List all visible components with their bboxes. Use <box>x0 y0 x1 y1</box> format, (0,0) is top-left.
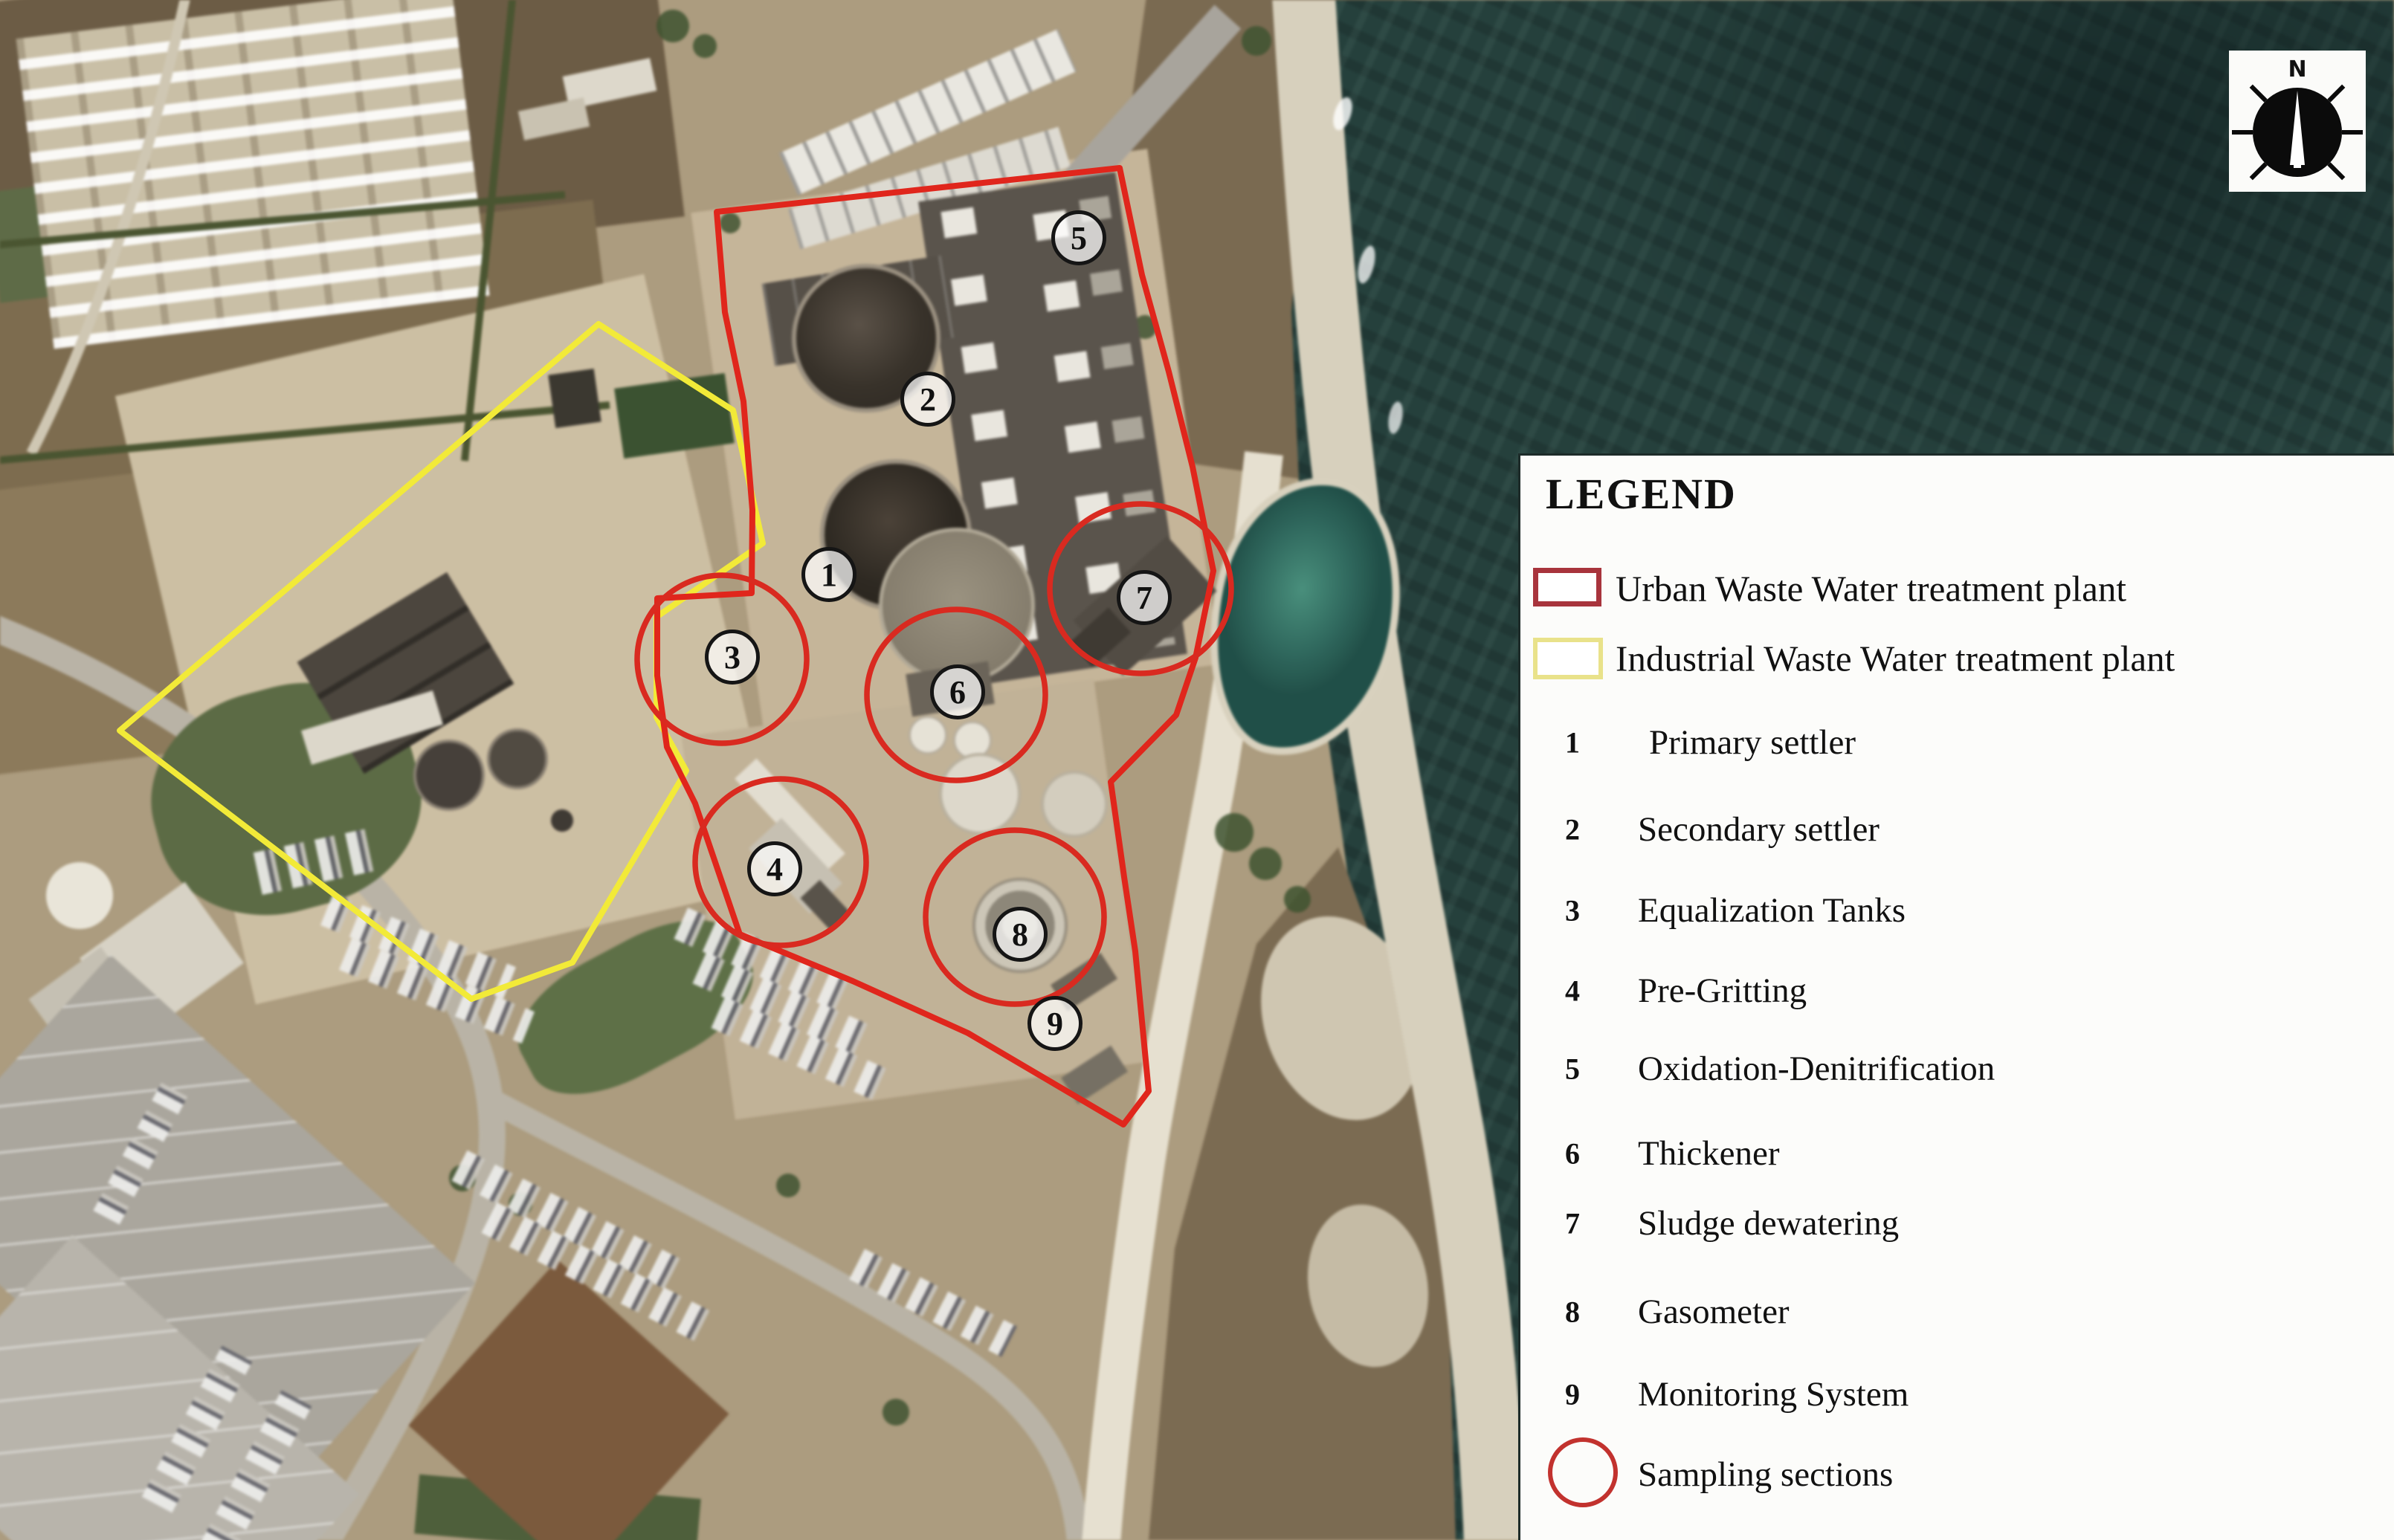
legend-row-8: 8 Gasometer <box>1520 1290 2394 1334</box>
north-label: N <box>2229 56 2366 82</box>
industrial-boundary <box>120 324 763 999</box>
compass-rose: N <box>2229 51 2366 192</box>
legend-row-4: 4 Pre-Gritting <box>1520 968 2394 1013</box>
legend-row-sampling: Sampling sections <box>1520 1451 2394 1525</box>
legend-number: 6 <box>1556 1136 1589 1171</box>
map-marker-1: 1 <box>801 547 856 602</box>
legend-number: 1 <box>1556 725 1589 760</box>
legend-label: Thickener <box>1638 1133 1780 1174</box>
legend-row-2: 2 Secondary settler <box>1520 807 2394 852</box>
legend-number: 2 <box>1556 812 1589 847</box>
legend-label: Sludge dewatering <box>1638 1203 1899 1243</box>
legend-label: Oxidation-Denitrification <box>1638 1049 1995 1089</box>
legend-label: Monitoring System <box>1638 1374 1909 1414</box>
legend-row-3: 3 Equalization Tanks <box>1520 888 2394 933</box>
map-marker-6: 6 <box>930 664 985 719</box>
legend-number: 4 <box>1556 974 1589 1009</box>
legend-row-industrial: Industrial Waste Water treatment plant <box>1520 636 2394 681</box>
compass-needle-icon <box>2290 91 2305 165</box>
compass-tick <box>2327 85 2345 103</box>
legend-number: 5 <box>1556 1052 1589 1087</box>
legend-label: Gasometer <box>1638 1292 1790 1332</box>
urban-boundary-swatch <box>1533 568 1601 606</box>
legend-label: Pre-Gritting <box>1638 971 1807 1011</box>
map-marker-2: 2 <box>900 372 955 427</box>
legend-row-1: 1 Primary settler <box>1520 720 2394 765</box>
map-marker-3: 3 <box>705 630 760 685</box>
compass-tick <box>2342 130 2363 135</box>
map-marker-8: 8 <box>993 907 1048 962</box>
legend-row-7: 7 Sludge dewatering <box>1520 1201 2394 1246</box>
map-marker-7: 7 <box>1117 570 1172 625</box>
legend-number: 7 <box>1556 1206 1589 1241</box>
legend-row-6: 6 Thickener <box>1520 1131 2394 1176</box>
legend-label: Sampling sections <box>1638 1455 1893 1495</box>
legend-row-5: 5 Oxidation-Denitrification <box>1520 1046 2394 1091</box>
satellite-map-figure: 123456789 N LEGEND Urban Waste Water tre… <box>0 0 2394 1540</box>
compass-notch <box>2294 161 2301 168</box>
legend-title: LEGEND <box>1546 469 1737 519</box>
compass-tick <box>2327 162 2345 180</box>
industrial-boundary-swatch <box>1533 638 1603 679</box>
compass-tick <box>2250 85 2268 103</box>
legend-number: 3 <box>1556 893 1589 928</box>
legend-label: Urban Waste Water treatment plant <box>1616 568 2126 610</box>
legend-panel: LEGEND Urban Waste Water treatment plant… <box>1518 453 2394 1540</box>
legend-number: 9 <box>1556 1377 1589 1412</box>
map-marker-4: 4 <box>747 841 802 896</box>
legend-label: Equalization Tanks <box>1638 890 1906 931</box>
sampling-circle-swatch <box>1548 1437 1618 1507</box>
legend-label: Secondary settler <box>1638 809 1880 850</box>
map-marker-5: 5 <box>1051 210 1106 265</box>
legend-label: Primary settler <box>1649 722 1856 763</box>
compass-tick <box>2250 162 2268 180</box>
legend-number: 8 <box>1556 1295 1589 1330</box>
legend-row-9: 9 Monitoring System <box>1520 1372 2394 1417</box>
compass-tick <box>2232 130 2253 135</box>
map-marker-9: 9 <box>1027 996 1083 1051</box>
legend-label: Industrial Waste Water treatment plant <box>1616 638 2175 680</box>
legend-row-urban: Urban Waste Water treatment plant <box>1520 566 2394 611</box>
